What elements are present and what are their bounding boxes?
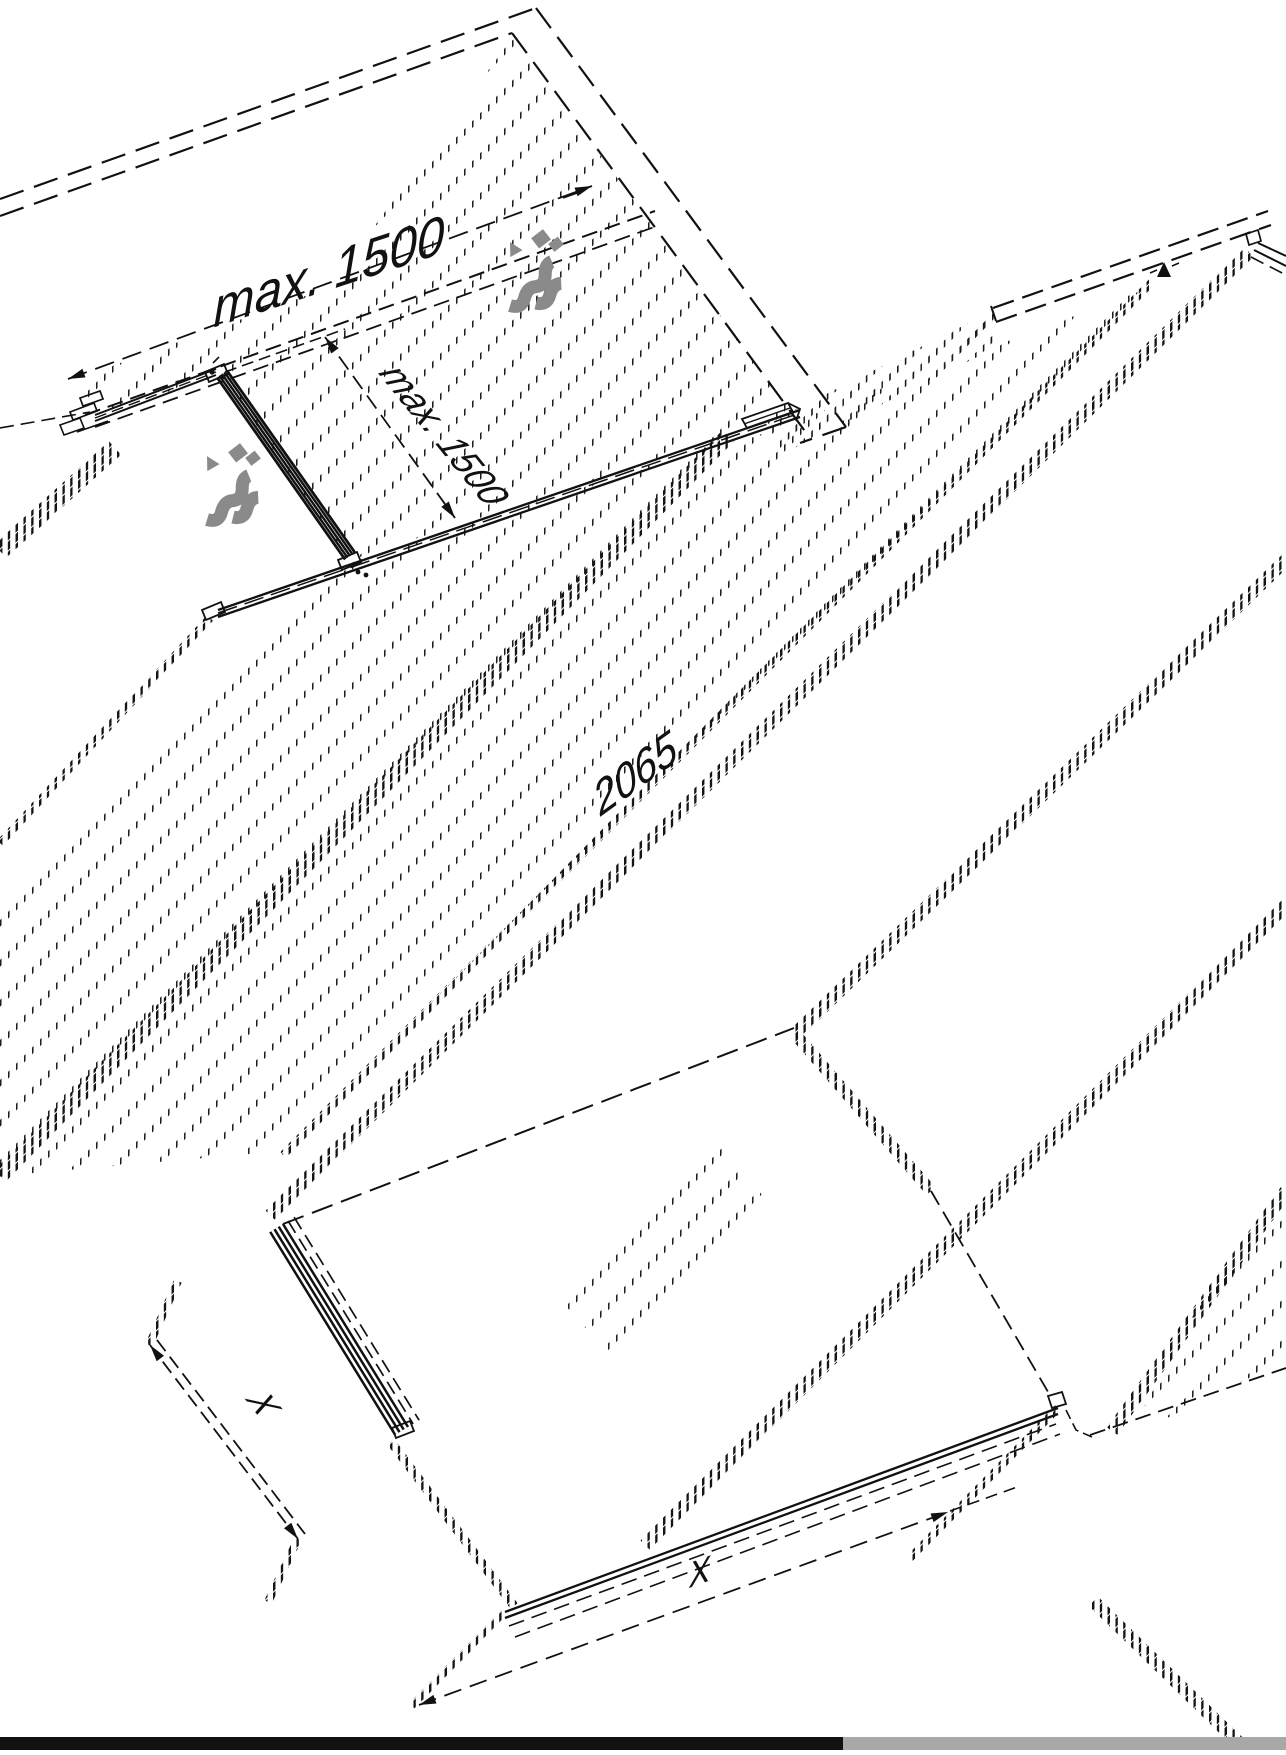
svg-text:X: X	[687, 1548, 712, 1597]
